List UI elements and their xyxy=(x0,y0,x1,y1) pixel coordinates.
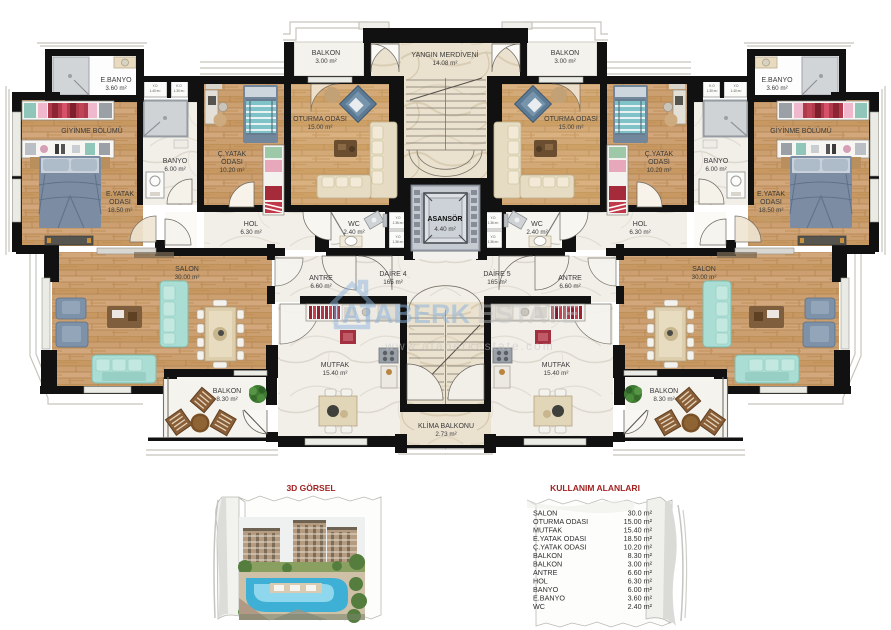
svg-text:SALON: SALON xyxy=(175,266,199,273)
svg-text:HOL: HOL xyxy=(633,221,648,228)
svg-text:K.O: K.O xyxy=(709,84,715,88)
svg-text:OTURMA ODASI: OTURMA ODASI xyxy=(293,116,347,123)
svg-text:10.20 m²: 10.20 m² xyxy=(220,167,245,174)
svg-text:2.73 m²: 2.73 m² xyxy=(435,431,456,438)
svg-text:10.20 m²: 10.20 m² xyxy=(647,167,672,174)
svg-text:3.00 m²: 3.00 m² xyxy=(554,58,575,65)
svg-text:6.00 m²: 6.00 m² xyxy=(164,166,185,173)
svg-text:ANTRE: ANTRE xyxy=(558,275,582,282)
svg-text:15.00 m²: 15.00 m² xyxy=(559,124,584,131)
svg-text:15.40 m²: 15.40 m² xyxy=(323,370,348,377)
svg-text:Y.O: Y.O xyxy=(733,84,739,88)
svg-text:Y.O: Y.O xyxy=(395,216,401,220)
svg-text:ODASI: ODASI xyxy=(109,199,131,206)
svg-text:6.30 m²: 6.30 m² xyxy=(240,229,261,236)
svg-text:WC: WC xyxy=(531,221,543,228)
svg-text:Y.O: Y.O xyxy=(490,216,496,220)
svg-text:WC: WC xyxy=(348,221,360,228)
svg-text:18.50 m²: 18.50 m² xyxy=(759,207,784,214)
svg-text:www.ataberkestate.com: www.ataberkestate.com xyxy=(384,339,554,353)
svg-text:165 m²: 165 m² xyxy=(383,279,403,286)
svg-text:1.36 m²: 1.36 m² xyxy=(393,240,404,244)
svg-text:GİYİNME BÖLÜMÜ: GİYİNME BÖLÜMÜ xyxy=(770,126,831,135)
svg-text:ESTATE: ESTATE xyxy=(477,299,580,329)
svg-text:1.40 m²: 1.40 m² xyxy=(731,89,742,93)
svg-text:E.YATAK: E.YATAK xyxy=(106,191,134,198)
svg-text:15.00 m²: 15.00 m² xyxy=(308,124,333,131)
svg-text:3D GÖRSEL: 3D GÖRSEL xyxy=(286,483,335,493)
svg-text:DAİRE 5: DAİRE 5 xyxy=(483,269,510,278)
svg-text:Y.O: Y.O xyxy=(490,235,496,239)
svg-text:1.36 m²: 1.36 m² xyxy=(488,240,499,244)
svg-text:DAİRE 4: DAİRE 4 xyxy=(379,269,406,278)
svg-text:15.40 m²: 15.40 m² xyxy=(544,370,569,377)
svg-text:Y.O: Y.O xyxy=(152,84,158,88)
svg-text:3.00 m²: 3.00 m² xyxy=(315,58,336,65)
svg-text:KULLANIM ALANLARI: KULLANIM ALANLARI xyxy=(550,483,640,493)
svg-text:ODASI: ODASI xyxy=(648,159,670,166)
svg-text:ATABERK: ATABERK xyxy=(342,299,470,329)
svg-text:BANYO: BANYO xyxy=(704,158,729,165)
svg-text:Ç.YATAK: Ç.YATAK xyxy=(218,151,247,158)
svg-text:18.50 m²: 18.50 m² xyxy=(108,207,133,214)
svg-text:SALON: SALON xyxy=(692,266,716,273)
svg-text:ODASI: ODASI xyxy=(760,199,782,206)
svg-text:1.30 m²: 1.30 m² xyxy=(174,89,185,93)
svg-text:ASANSÖR: ASANSÖR xyxy=(427,214,462,223)
svg-text:MUTFAK: MUTFAK xyxy=(542,362,571,369)
svg-text:6.30 m²: 6.30 m² xyxy=(629,229,650,236)
svg-text:14.08 m²: 14.08 m² xyxy=(433,60,458,67)
svg-text:6.60 m²: 6.60 m² xyxy=(559,283,580,290)
svg-text:8.30 m²: 8.30 m² xyxy=(653,396,674,403)
svg-text:165 m²: 165 m² xyxy=(487,279,507,286)
svg-text:2.40 m²: 2.40 m² xyxy=(343,229,364,236)
svg-text:WC: WC xyxy=(533,602,545,611)
svg-text:1.36 m²: 1.36 m² xyxy=(488,221,499,225)
svg-text:YANGIN MERDİVENİ: YANGIN MERDİVENİ xyxy=(411,50,478,59)
svg-text:ANTRE: ANTRE xyxy=(309,275,333,282)
svg-text:1.30 m²: 1.30 m² xyxy=(707,89,718,93)
svg-text:KLİMA BALKONU: KLİMA BALKONU xyxy=(418,421,474,430)
svg-text:BANYO: BANYO xyxy=(163,158,188,165)
svg-text:3.60 m²: 3.60 m² xyxy=(766,85,787,92)
svg-text:ODASI: ODASI xyxy=(221,159,243,166)
svg-text:BALKON: BALKON xyxy=(650,388,678,395)
svg-text:GİYİNME BÖLÜMÜ: GİYİNME BÖLÜMÜ xyxy=(61,126,122,135)
svg-text:3.60 m²: 3.60 m² xyxy=(105,85,126,92)
svg-text:OTURMA ODASI: OTURMA ODASI xyxy=(544,116,598,123)
svg-text:E.BANYO: E.BANYO xyxy=(100,77,132,84)
svg-text:30.00 m²: 30.00 m² xyxy=(175,274,200,281)
svg-text:4.40 m²: 4.40 m² xyxy=(434,226,455,233)
svg-text:MUTFAK: MUTFAK xyxy=(321,362,350,369)
svg-text:HOL: HOL xyxy=(244,221,259,228)
svg-text:1.36 m²: 1.36 m² xyxy=(393,221,404,225)
svg-text:6.60 m²: 6.60 m² xyxy=(310,283,331,290)
svg-text:8.30 m²: 8.30 m² xyxy=(216,396,237,403)
svg-text:2.40 m²: 2.40 m² xyxy=(526,229,547,236)
svg-text:2.40 m²: 2.40 m² xyxy=(628,602,653,611)
svg-text:BALKON: BALKON xyxy=(213,388,241,395)
svg-text:K.O: K.O xyxy=(176,84,182,88)
svg-text:Ç.YATAK: Ç.YATAK xyxy=(645,151,674,158)
svg-text:1.40 m²: 1.40 m² xyxy=(150,89,161,93)
svg-text:Y.O: Y.O xyxy=(395,235,401,239)
svg-text:E.BANYO: E.BANYO xyxy=(761,77,793,84)
svg-text:BALKON: BALKON xyxy=(312,50,340,57)
svg-text:BALKON: BALKON xyxy=(551,50,579,57)
svg-text:6.00 m²: 6.00 m² xyxy=(705,166,726,173)
svg-text:E.YATAK: E.YATAK xyxy=(757,191,785,198)
svg-text:30.00 m²: 30.00 m² xyxy=(692,274,717,281)
